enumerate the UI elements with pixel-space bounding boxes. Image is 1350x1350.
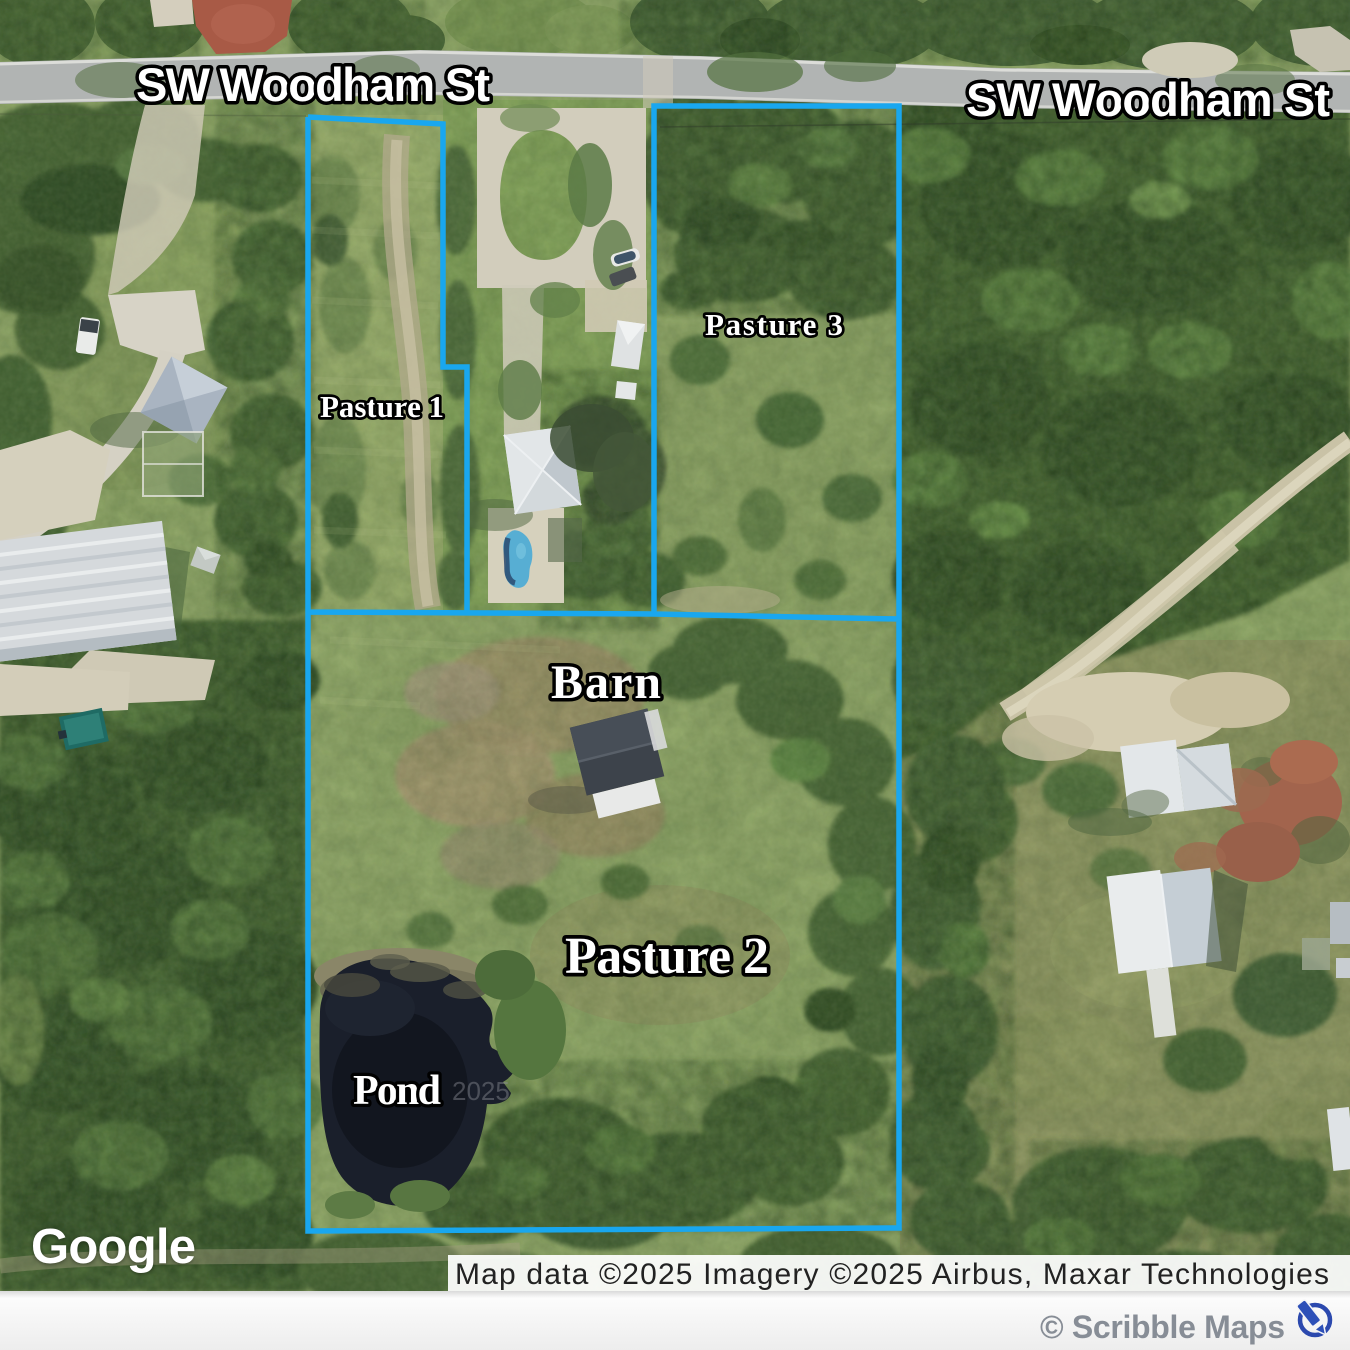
svg-text:Pasture 1: Pasture 1 [320,389,444,424]
svg-text:Pond: Pond [353,1068,441,1114]
svg-text:2025: 2025 [452,1076,510,1106]
svg-text:SW Woodham St: SW Woodham St [136,58,490,111]
svg-text:Map data ©2025 Imagery ©2025 A: Map data ©2025 Imagery ©2025 Airbus, Max… [455,1258,1329,1291]
svg-text:SW Woodham St: SW Woodham St [966,73,1330,126]
svg-text:Pasture 2: Pasture 2 [565,928,769,985]
svg-text:© Scribble Maps: © Scribble Maps [1040,1309,1285,1345]
svg-text:Pasture 3: Pasture 3 [705,307,843,342]
svg-text:Barn: Barn [551,656,661,709]
svg-text:Google: Google [31,1220,196,1274]
